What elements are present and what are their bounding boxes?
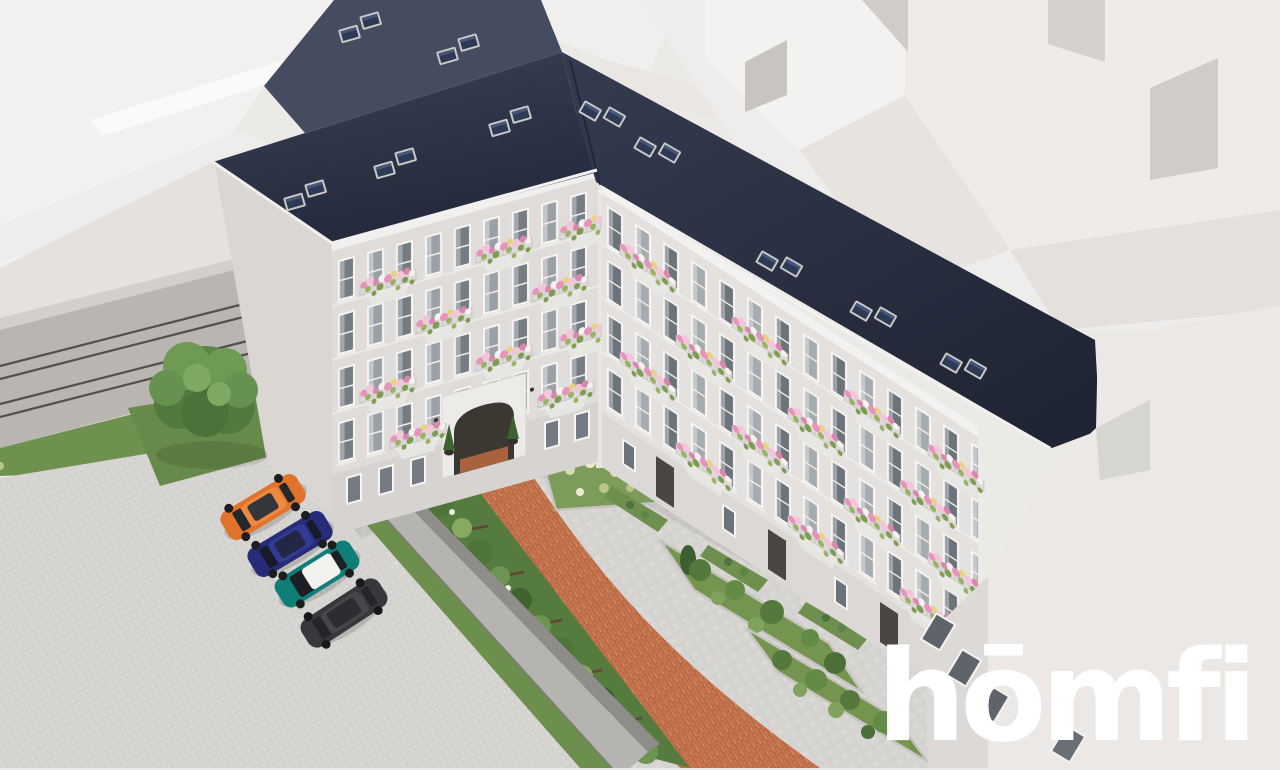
homfi-logo-text: hōmfi bbox=[876, 623, 1252, 770]
rendering: hōmfi bbox=[0, 0, 1280, 768]
homfi-logo: hōmfi bbox=[876, 634, 1252, 760]
